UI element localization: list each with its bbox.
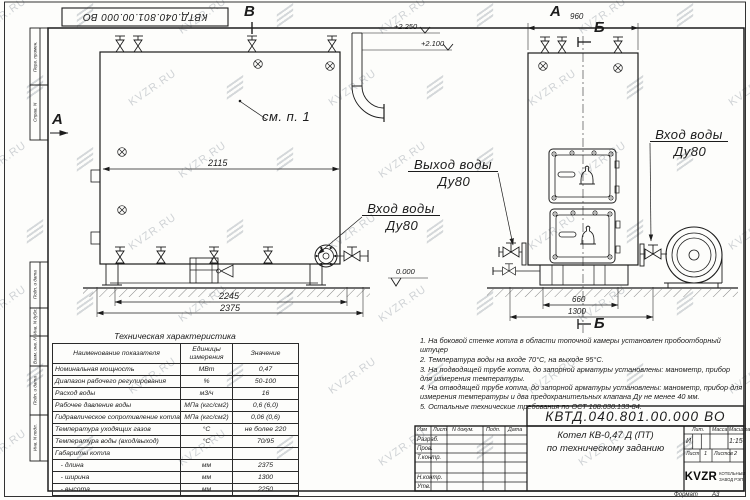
- format-value: А3: [712, 492, 719, 498]
- table-cell: 50-100: [233, 376, 299, 388]
- row-n-kontr: Н.контр.: [417, 475, 442, 481]
- table-cell: Расход воды: [53, 388, 181, 400]
- view-marker-b-top: В: [244, 4, 255, 19]
- section-marker-b-top: Б: [594, 20, 605, 35]
- side-label-inv-podl: Инв. N подл.: [30, 415, 40, 461]
- spec-table-body: Номинальная мощностьМВт0,47Диапазон рабо…: [53, 364, 299, 496]
- table-row: Номинальная мощностьМВт0,47: [53, 364, 299, 376]
- side-label-inv-dubl: Инв. N дубл.: [30, 308, 40, 336]
- table-cell: 0,06 (0,6): [233, 412, 299, 424]
- side-label-vzam-inv: Взам. инв. N: [30, 336, 40, 366]
- spec-header-units: Единицы измерения: [181, 344, 233, 364]
- table-row: - длинамм2375: [53, 460, 299, 472]
- table-cell: - ширина: [53, 472, 181, 484]
- note-item: 3. На подводящей трубе котла, до запорно…: [420, 366, 744, 384]
- table-cell: м3/ч: [181, 388, 233, 400]
- table-cell: Номинальная мощность: [53, 364, 181, 376]
- table-row: Расход водым3/ч16: [53, 388, 299, 400]
- title-block-doc-number: КВТД.040.801.00.000 ВО: [527, 406, 744, 426]
- table-row: Рабочее давление водыМПа (кгс/см2)0,6 (6…: [53, 400, 299, 412]
- dim-1300: 1300: [568, 308, 586, 316]
- inlet-left-dn: Ду80: [386, 219, 418, 232]
- lit-value: И: [686, 438, 691, 445]
- inlet-right-label: Вход воды: [650, 128, 728, 142]
- sheets-label: Листов: [714, 452, 733, 457]
- col-podp: Подп.: [486, 428, 500, 433]
- table-cell: 2375: [233, 460, 299, 472]
- dim-2375: 2375: [220, 304, 240, 313]
- table-cell: 70/95: [233, 436, 299, 448]
- table-row: Гидравлическое сопротивление котлаМПа (к…: [53, 412, 299, 424]
- inlet-right-dn: Ду80: [674, 145, 706, 158]
- col-n-dokum: N докум.: [452, 428, 474, 433]
- scale-value: 1:15: [729, 438, 743, 445]
- left-view: [50, 22, 453, 317]
- note-item: 2. Температура воды на входе 70°С, на вы…: [420, 356, 744, 365]
- table-row: Температура уходящих газов°Сне более 220: [53, 424, 299, 436]
- format-label: Формат: [674, 492, 698, 498]
- note-item: 4. На отводящей трубе котла, до запорной…: [420, 384, 744, 402]
- table-cell: Температура воды (вход/выход): [53, 436, 181, 448]
- table-cell: °С: [181, 436, 233, 448]
- spec-header-value: Значение: [233, 344, 299, 364]
- row-prov: Пров.: [417, 446, 433, 452]
- col-list: Лист: [433, 428, 447, 433]
- table-cell: 2250: [233, 484, 299, 496]
- table-cell: %: [181, 376, 233, 388]
- table-cell: - длина: [53, 460, 181, 472]
- table-cell: МПа (кгс/см2): [181, 412, 233, 424]
- drawing-sheet: KVZR.RUKVZR.RUKVZR.RUKVZR.RUKVZR.RUKVZR.…: [0, 0, 750, 500]
- table-cell: - высота: [53, 484, 181, 496]
- outlet-label: Выход воды: [408, 158, 498, 172]
- table-cell: 0,47: [233, 364, 299, 376]
- notes-list: 1. На боковой стенке котла в области топ…: [420, 337, 744, 413]
- dim-960: 960: [570, 13, 583, 21]
- sheet-value: 1: [704, 452, 707, 458]
- table-cell: Габариты котла: [53, 448, 181, 460]
- logo-subtext-line1: КОТЕЛЬНЫЙ: [719, 471, 745, 476]
- table-row: Габариты котла: [53, 448, 299, 460]
- view-marker-a-left: А: [52, 112, 63, 127]
- table-cell: 16: [233, 388, 299, 400]
- side-label-sprav-n: Справ. N: [30, 85, 40, 140]
- table-cell: мм: [181, 460, 233, 472]
- lit-label: Лит.: [692, 428, 704, 433]
- sheet-label: Лист: [686, 452, 699, 457]
- table-cell: не более 220: [233, 424, 299, 436]
- table-row: - высотамм2250: [53, 484, 299, 496]
- title-block-title: Котел КВ-0,47 Д (ПТ) по техническому зад…: [527, 430, 684, 456]
- top-doc-number: КВТД.040.801.00.000 ВО: [62, 8, 228, 26]
- dim-2245: 2245: [219, 292, 239, 301]
- spec-header-row: Наименование показателя Единицы измерени…: [53, 344, 299, 364]
- logo-subtext: КОТЕЛЬНЫЙ ЗАВОД РЭП: [719, 471, 745, 482]
- row-utv: Утв.: [417, 484, 431, 490]
- row-t-kontr: Т.контр.: [417, 455, 441, 461]
- outlet-dn: Ду80: [438, 175, 470, 188]
- col-data: Дата: [508, 428, 522, 433]
- spec-table: Техническая характеристика Наименование …: [52, 331, 298, 496]
- table-row: Диапазон рабочего регулирования%50-100: [53, 376, 299, 388]
- dim-2115: 2115: [208, 159, 227, 168]
- table-row: - ширинамм1300: [53, 472, 299, 484]
- row-razrab: Разраб.: [417, 437, 439, 443]
- spec-header-name: Наименование показателя: [53, 344, 181, 364]
- logo-subtext-line2: ЗАВОД РЭП: [719, 477, 745, 482]
- scale-label: Масштаб: [729, 428, 750, 433]
- table-cell: 1300: [233, 472, 299, 484]
- table-cell: Диапазон рабочего регулирования: [53, 376, 181, 388]
- table-cell: [181, 448, 233, 460]
- side-label-perv-primen: Перв. примен.: [30, 28, 40, 85]
- side-label-podp-data-2: Подп. и дата: [30, 366, 40, 415]
- level-mark-2250: +2.250: [394, 23, 417, 31]
- table-cell: мм: [181, 472, 233, 484]
- table-cell: мм: [181, 484, 233, 496]
- table-cell: [233, 448, 299, 460]
- inlet-left-label: Вход воды: [362, 202, 440, 216]
- dim-660: 660: [572, 296, 585, 304]
- side-label-podp-data-1: Подп. и дата: [30, 262, 40, 308]
- table-cell: Гидравлическое сопротивление котла: [53, 412, 181, 424]
- spec-table-title: Техническая характеристика: [52, 331, 298, 341]
- mass-label: Масса: [712, 428, 727, 433]
- table-cell: Температура уходящих газов: [53, 424, 181, 436]
- logo-text: KVZR: [685, 471, 718, 483]
- level-mark-2100: +2.100: [421, 40, 444, 48]
- company-logo: KVZR КОТЕЛЬНЫЙ ЗАВОД РЭП: [684, 463, 744, 490]
- section-marker-b-bottom: Б: [594, 316, 605, 331]
- level-mark-zero: 0.000: [396, 268, 415, 276]
- note-item: 1. На боковой стенке котла в области топ…: [420, 337, 744, 355]
- see-note-label: см. п. 1: [262, 110, 310, 123]
- right-view: [487, 23, 738, 333]
- title-line-1: Котел КВ-0,47 Д (ПТ): [527, 430, 684, 443]
- col-izm: Изм: [417, 428, 427, 433]
- view-marker-a-right: А: [550, 4, 561, 19]
- table-cell: МВт: [181, 364, 233, 376]
- table-cell: °С: [181, 424, 233, 436]
- table-cell: 0,6 (6,0): [233, 400, 299, 412]
- table-row: Температура воды (вход/выход)°С70/95: [53, 436, 299, 448]
- table-cell: Рабочее давление воды: [53, 400, 181, 412]
- title-line-2: по техническому заданию: [527, 443, 684, 456]
- sheets-value: 2: [734, 452, 737, 458]
- table-cell: МПа (кгс/см2): [181, 400, 233, 412]
